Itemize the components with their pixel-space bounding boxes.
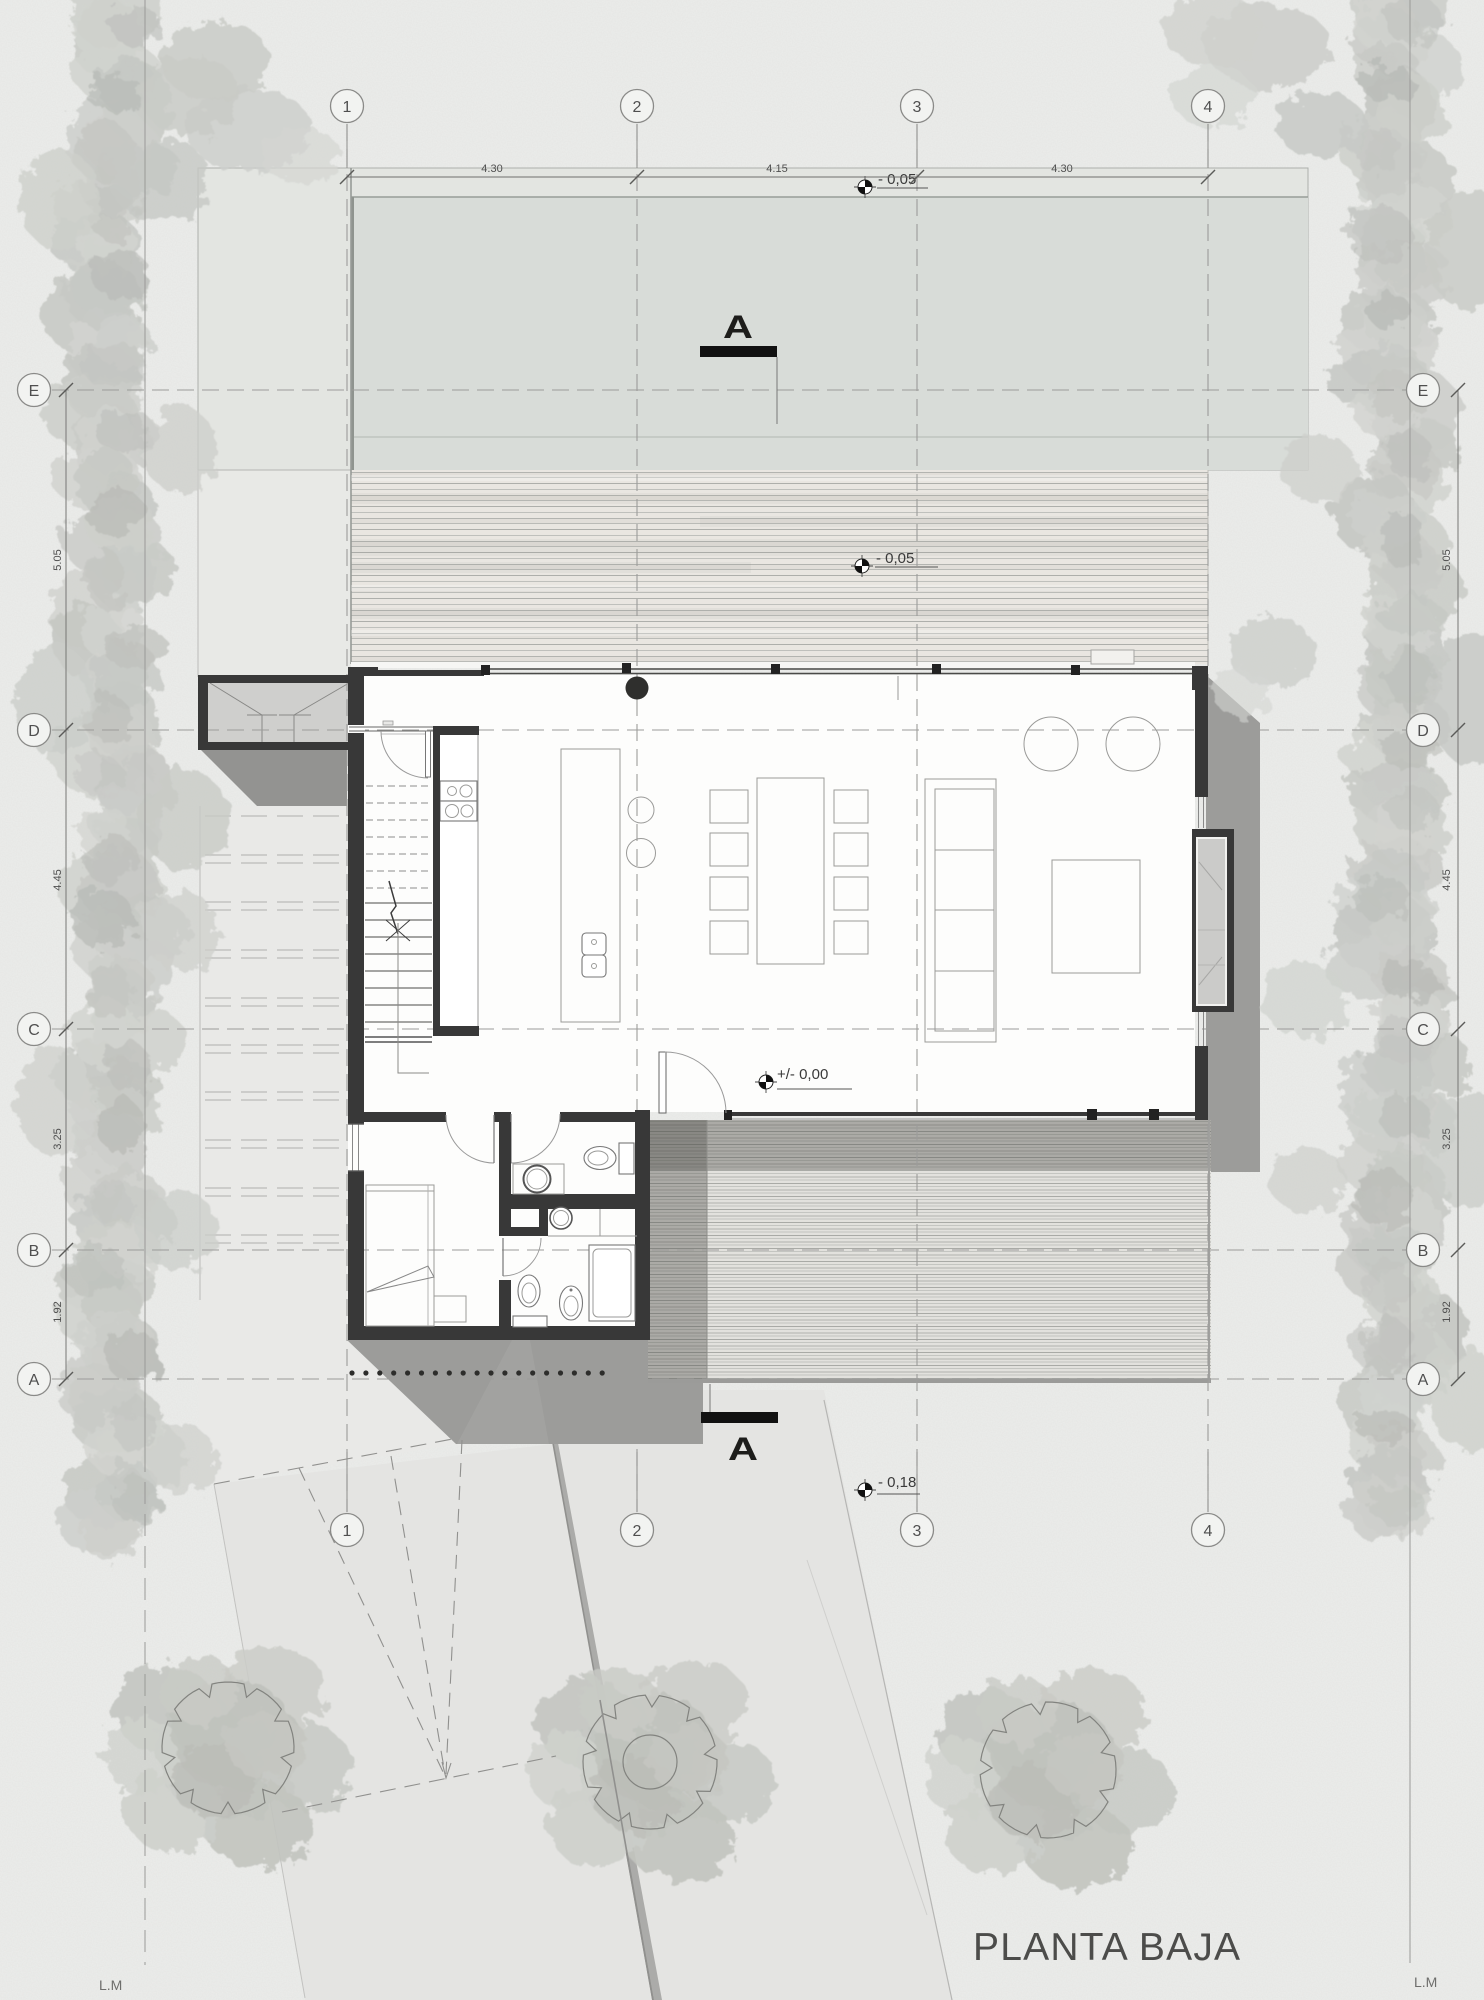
svg-text:A: A — [29, 1372, 40, 1389]
svg-text:A: A — [723, 309, 753, 345]
svg-text:3: 3 — [913, 1523, 922, 1540]
svg-text:2: 2 — [633, 99, 642, 116]
svg-text:B: B — [1418, 1243, 1429, 1260]
svg-text:D: D — [28, 723, 40, 740]
svg-text:- 0,05: - 0,05 — [876, 550, 914, 567]
svg-text:C: C — [28, 1022, 40, 1039]
svg-text:4.45: 4.45 — [52, 869, 64, 890]
svg-text:4.15: 4.15 — [766, 163, 787, 175]
svg-text:5.05: 5.05 — [52, 549, 64, 570]
svg-text:1.92: 1.92 — [1441, 1301, 1453, 1322]
svg-text:1: 1 — [343, 99, 352, 116]
svg-text:3.25: 3.25 — [1441, 1128, 1453, 1149]
svg-text:L.M: L.M — [1414, 1974, 1437, 1990]
svg-text:+/- 0,00: +/- 0,00 — [777, 1066, 828, 1083]
svg-text:4.30: 4.30 — [481, 163, 502, 175]
svg-text:A: A — [1418, 1372, 1429, 1389]
svg-text:PLANTA BAJA: PLANTA BAJA — [973, 1926, 1241, 1969]
svg-text:5.05: 5.05 — [1441, 549, 1453, 570]
svg-text:4: 4 — [1204, 99, 1213, 116]
svg-text:E: E — [29, 383, 40, 400]
svg-text:4: 4 — [1204, 1523, 1213, 1540]
svg-text:- 0,18: - 0,18 — [878, 1474, 916, 1491]
svg-text:B: B — [29, 1243, 40, 1260]
svg-text:4.30: 4.30 — [1051, 163, 1072, 175]
svg-text:A: A — [728, 1431, 758, 1467]
svg-text:1.92: 1.92 — [52, 1301, 64, 1322]
svg-text:4.45: 4.45 — [1441, 869, 1453, 890]
svg-text:3.25: 3.25 — [52, 1128, 64, 1149]
svg-text:1: 1 — [343, 1523, 352, 1540]
svg-text:L.M: L.M — [99, 1977, 122, 1993]
svg-text:C: C — [1417, 1022, 1429, 1039]
svg-text:E: E — [1418, 383, 1429, 400]
svg-text:- 0,05: - 0,05 — [878, 171, 916, 188]
svg-text:D: D — [1417, 723, 1429, 740]
svg-text:3: 3 — [913, 99, 922, 116]
svg-text:2: 2 — [633, 1523, 642, 1540]
